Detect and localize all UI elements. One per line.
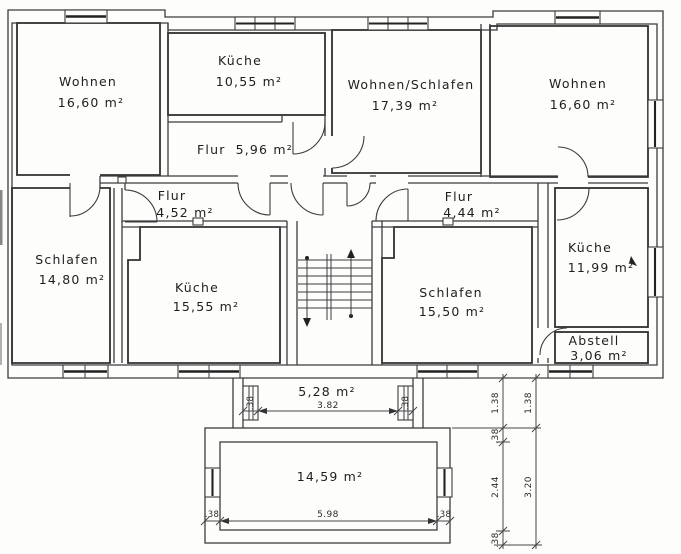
balcony-outer xyxy=(205,428,450,543)
window-right-2 xyxy=(648,247,663,297)
label-flur-left: Flur xyxy=(158,188,187,203)
door-wohnen-schlafen xyxy=(332,136,364,168)
walls xyxy=(8,10,663,378)
area-kueche-left: 15,55 m² xyxy=(173,299,240,314)
label-abstell: Abstell xyxy=(569,333,620,348)
area-schlafen-right: 15,50 m² xyxy=(419,304,486,319)
label-kueche-right: Küche xyxy=(568,240,612,255)
door-apartment-left xyxy=(238,183,270,215)
area-abstell: 3,06 m² xyxy=(570,348,627,363)
stair-treads xyxy=(298,260,372,308)
window-top-2 xyxy=(235,17,295,30)
dim-chain-outer-1: 1.38 xyxy=(491,392,501,414)
doors xyxy=(70,122,589,355)
window-bottom-1 xyxy=(63,365,108,378)
window-bottom-3 xyxy=(417,365,478,378)
area-vestibule: 5,28 m² xyxy=(298,384,355,399)
dim-chain-outer-4: .38 xyxy=(491,532,501,548)
area-flur-left: 4,52 m² xyxy=(156,205,213,220)
door-apartment-right xyxy=(376,189,408,221)
door-landing-left xyxy=(291,183,323,215)
window-bottom-2 xyxy=(178,365,240,378)
floor-plan-page: Wohnen 16,60 m² Küche 10,55 m² Wohnen/Sc… xyxy=(0,0,681,554)
dim-chain-outer-2: .38 xyxy=(491,428,501,444)
door-landing-right xyxy=(347,183,370,206)
door-kueche-right xyxy=(557,188,589,220)
room-kueche-left-outline xyxy=(128,227,280,363)
area-kueche-top: 10,55 m² xyxy=(216,74,283,89)
label-flur-top: Flur5,96 m² xyxy=(197,142,293,157)
scan-artifact xyxy=(0,323,2,365)
dim-chain-outer-3: 2.44 xyxy=(491,476,501,498)
area-wohnen-schlafen: 17,39 m² xyxy=(372,98,439,113)
window-top-3 xyxy=(368,17,428,30)
door-kueche-top xyxy=(293,122,325,154)
area-kueche-right: 11,99 m² xyxy=(568,260,635,275)
dim-balcony-wall-right: .38 xyxy=(437,510,451,520)
window-top-1 xyxy=(65,10,107,23)
windows xyxy=(63,10,663,378)
window-right-1 xyxy=(648,100,663,148)
area-wohnen-right: 16,60 m² xyxy=(550,97,617,112)
label-kueche-top: Küche xyxy=(218,53,262,68)
door-flur-left xyxy=(125,190,157,222)
balcony-window-left xyxy=(205,468,220,497)
door-wohnen-right xyxy=(558,147,588,177)
label-schlafen-right: Schlafen xyxy=(419,285,482,300)
balcony-window-right xyxy=(437,468,452,497)
label-kueche-left: Küche xyxy=(175,280,219,295)
door-sill-flur-left xyxy=(118,177,126,183)
dim-chain-inner-2: 3.20 xyxy=(524,476,534,498)
room-kueche-right-outline xyxy=(555,188,648,327)
label-wohnen-schlafen: Wohnen/Schlafen xyxy=(348,77,475,92)
dim-balcony-width: 5.98 xyxy=(317,510,339,520)
dim-pier-left: .38 xyxy=(246,396,256,410)
area-schlafen-left: 14,80 m² xyxy=(39,272,106,287)
dim-pier-right: .38 xyxy=(401,396,411,410)
dim-chain-inner-1: 1.38 xyxy=(524,392,534,414)
label-wohnen-right: Wohnen xyxy=(549,76,607,91)
label-flur-right: Flur xyxy=(445,189,474,204)
staircase xyxy=(298,249,372,327)
area-flur-right: 4,44 m² xyxy=(443,205,500,220)
window-top-4 xyxy=(555,11,600,24)
window-bottom-4 xyxy=(548,365,593,378)
area-balcony: 14,59 m² xyxy=(297,469,364,484)
label-wohnen-left: Wohnen xyxy=(59,74,117,89)
scan-artifact xyxy=(0,190,3,245)
door-wohnen-left-schlafen xyxy=(70,183,100,217)
dim-vestibule-width: 3.82 xyxy=(317,401,339,411)
label-schlafen-left: Schlafen xyxy=(35,252,98,267)
area-wohnen-left: 16,60 m² xyxy=(58,95,125,110)
floor-plan-drawing: Wohnen 16,60 m² Küche 10,55 m² Wohnen/Sc… xyxy=(0,0,681,554)
dim-balcony-wall-left: .38 xyxy=(205,510,219,520)
